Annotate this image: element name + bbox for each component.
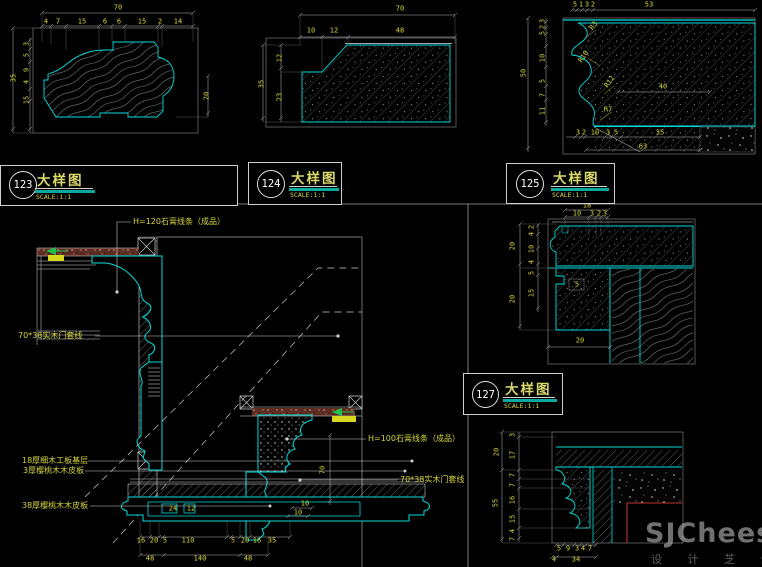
stair-section-linework xyxy=(37,222,430,567)
dim-text: 20 xyxy=(494,448,501,456)
dim-text: 70 xyxy=(396,6,404,13)
detail-123-linework xyxy=(11,11,210,133)
dim-text: 140 xyxy=(194,556,207,563)
dim-text: 20 xyxy=(204,92,211,100)
dim-text: 3 xyxy=(585,2,589,9)
dim-text: 4 xyxy=(24,80,31,84)
callout-cherry-veneer-3: 3厚樱桃木木皮板 xyxy=(23,467,84,475)
dim-text: 10 xyxy=(591,130,599,137)
detail-label-127: 127 大样图 SCALE:1:1 xyxy=(463,373,563,415)
detail-label-124: 124 大样图 SCALE:1:1 xyxy=(248,162,342,205)
dim-text: 7 xyxy=(588,546,592,553)
dim-text: 20 xyxy=(241,538,249,545)
dim-text: 10 xyxy=(294,510,302,517)
dim-text: 9 xyxy=(566,546,570,553)
dim-text: 5 xyxy=(540,31,547,35)
dim-text: 48 xyxy=(396,28,404,35)
highlight-bar-1 xyxy=(48,255,64,261)
dim-text: 17 xyxy=(510,451,517,459)
dim-text: 15 xyxy=(138,19,146,26)
dim-text: 53 xyxy=(645,2,653,9)
dim-text: 3 xyxy=(24,42,31,46)
dim-text: 35 xyxy=(656,130,664,137)
detail-number-bubble: 125 xyxy=(516,170,544,198)
detail-title: 大样图 xyxy=(505,378,552,398)
dim-text: 3 xyxy=(510,433,517,437)
detail-scale: SCALE:1:1 xyxy=(504,402,539,410)
dim-text: 5 xyxy=(540,79,547,83)
dim-text: 12 xyxy=(330,28,338,35)
dim-text: 7 xyxy=(510,473,517,477)
detail-number-bubble: 124 xyxy=(257,170,285,198)
callout-door-frame-top: 70*38实木门套线 xyxy=(18,332,82,340)
watermark: SJCheese 设 计 芝 士 xyxy=(645,518,762,567)
callout-plaster-h100: H=100石膏线条（成品） xyxy=(368,435,460,443)
dim-text: 7 xyxy=(540,93,547,97)
detail-scale: SCALE:1:1 xyxy=(552,191,587,199)
dim-text: 3 xyxy=(603,211,607,218)
dim-text: 4 xyxy=(44,19,48,26)
dim-text: 3 xyxy=(540,19,547,23)
dim-text: 55 xyxy=(493,499,500,507)
dim-text: 5 xyxy=(529,271,536,275)
dim-text: 2 xyxy=(582,130,586,137)
dim-text: 2 xyxy=(591,2,595,9)
detail-title: 大样图 xyxy=(553,167,600,187)
cad-drawing-canvas: 70 4 7 15 6 6 15 2 14 35 3 5 9 4 15 20 7… xyxy=(0,0,762,567)
callout-plaster-h120: H=120石膏线条（成品） xyxy=(133,218,225,226)
dim-text: 4 xyxy=(510,529,517,533)
dim-text: 35 xyxy=(259,80,266,88)
dim-text: 48 xyxy=(146,556,154,563)
dim-text: 24 xyxy=(169,506,177,513)
watermark-subtitle: 设 计 芝 士 xyxy=(651,551,762,567)
dim-text: 6 xyxy=(103,19,107,26)
detail-title: 大样图 xyxy=(37,169,84,189)
dim-text: 5 xyxy=(575,282,579,289)
dim-text: 4 xyxy=(552,557,556,564)
dim-text: 5 xyxy=(614,130,618,137)
dim-text: 70 xyxy=(114,5,122,12)
dim-text: 2 xyxy=(540,25,547,29)
dim-text: 23 xyxy=(277,93,284,101)
dim-text: 5 xyxy=(231,538,235,545)
dim-text: 12 xyxy=(187,506,195,513)
detail-number: 124 xyxy=(262,178,281,190)
callout-door-frame-mid: 70*38实木门套线 xyxy=(400,476,464,484)
detail-number: 127 xyxy=(476,389,495,401)
dim-text: 2 xyxy=(529,225,536,229)
cad-linework xyxy=(0,0,762,567)
dim-text: 20 xyxy=(510,295,517,303)
detail-title: 大样图 xyxy=(291,167,338,187)
dim-text: 20 xyxy=(150,538,158,545)
dim-text: 4 xyxy=(529,260,536,264)
dim-text: 5 xyxy=(573,2,577,9)
dim-text: 63 xyxy=(639,144,647,151)
radius-text: R7 xyxy=(604,107,612,114)
dim-text: 4 xyxy=(529,232,536,236)
crown-molding-h100 xyxy=(258,415,312,472)
dim-text: 7 xyxy=(510,537,517,541)
base-profile xyxy=(121,497,429,521)
dim-text: 10 xyxy=(307,28,315,35)
dim-text: 3 xyxy=(606,130,610,137)
callout-cherry-veneer-38: 38厚樱桃木木皮板 xyxy=(22,502,88,510)
dim-text: 3 xyxy=(590,211,594,218)
dim-text: 20 xyxy=(510,242,517,250)
dim-text: 48 xyxy=(244,556,252,563)
dim-text: 16 xyxy=(137,538,145,545)
dim-text: 14 xyxy=(174,19,182,26)
dim-text: 5 xyxy=(163,538,167,545)
dim-text: 10 xyxy=(540,54,547,62)
dim-text: 110 xyxy=(182,538,195,545)
dim-text: 20 xyxy=(576,338,584,345)
dim-text: 16 xyxy=(253,538,261,545)
blocking-x-boxes xyxy=(138,238,362,469)
dim-text: 16 xyxy=(510,496,517,504)
dim-text: 3 xyxy=(575,546,579,553)
detail-scale: SCALE:1:1 xyxy=(290,191,325,199)
detail-number-bubble: 123 xyxy=(9,171,37,199)
dim-text: 50 xyxy=(521,69,528,77)
dim-text: 11 xyxy=(540,107,547,115)
dim-text: 7 xyxy=(510,483,517,487)
detail-scale: SCALE:1:1 xyxy=(36,193,71,201)
dim-text: 1 xyxy=(579,2,583,9)
dim-text: 40 xyxy=(659,84,667,91)
watermark-brand: SJCheese xyxy=(645,518,762,549)
dim-text: 10 xyxy=(573,211,581,218)
detail-label-125: 125 大样图 SCALE:1:1 xyxy=(506,163,615,204)
dim-text: 15 xyxy=(510,515,517,523)
detail-127-linework xyxy=(518,208,695,364)
dim-text: 6 xyxy=(117,19,121,26)
dim-text: 15 xyxy=(78,19,86,26)
detail-label-123: 123 大样图 SCALE:1:1 xyxy=(0,165,238,206)
detail-number-bubble: 127 xyxy=(472,381,499,408)
highlight-bar-2 xyxy=(332,416,356,422)
dim-text: 15 xyxy=(529,289,536,297)
dim-text: 35 xyxy=(11,74,18,82)
detail-124-linework xyxy=(261,13,457,127)
dim-text: 12 xyxy=(277,54,284,62)
dim-text: 70 xyxy=(320,466,327,474)
dim-text: 7 xyxy=(56,19,60,26)
dim-text: 3 xyxy=(576,130,580,137)
callout-blockboard-base: 18厚细木工板基层 xyxy=(22,457,88,465)
dim-text: 2 xyxy=(158,19,162,26)
dim-text: 5 xyxy=(24,53,31,57)
dim-text: 2 xyxy=(597,211,601,218)
detail-number: 125 xyxy=(521,178,540,190)
dim-text: 15 xyxy=(24,96,31,104)
dim-text: 4 xyxy=(581,546,585,553)
dim-text: 9 xyxy=(24,68,31,72)
dim-text: 10 xyxy=(301,501,309,508)
dim-text: 10 xyxy=(529,245,536,253)
dim-text: 35 xyxy=(268,538,276,545)
detail-125-linework xyxy=(526,8,757,154)
detail-number: 123 xyxy=(14,179,33,191)
dim-text: 34 xyxy=(572,557,580,564)
dim-text: 5 xyxy=(557,546,561,553)
